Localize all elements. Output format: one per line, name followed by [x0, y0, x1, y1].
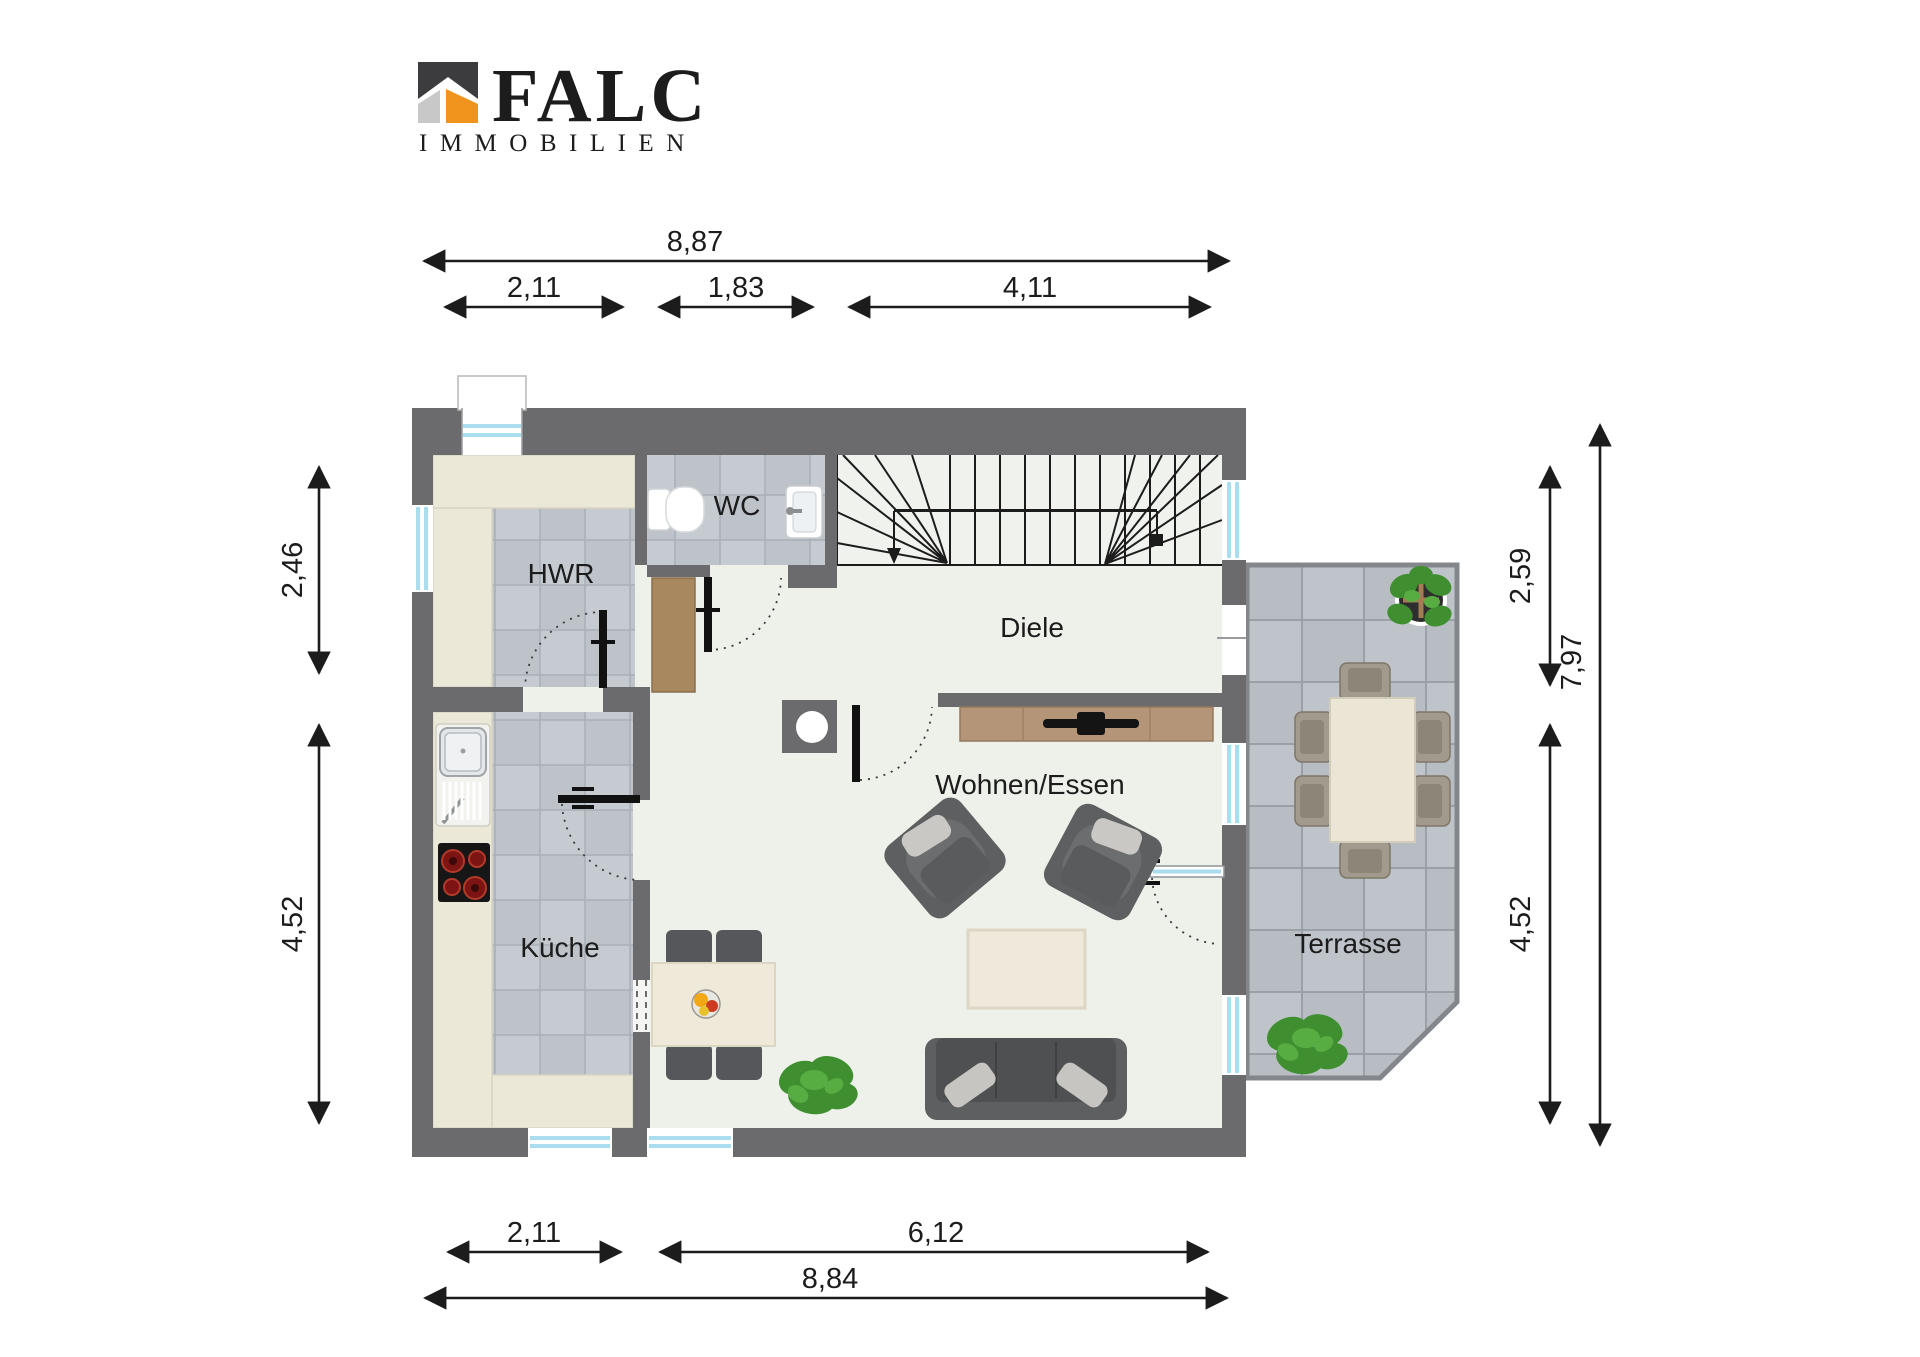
- window-right-living-upper: [1222, 743, 1246, 825]
- hwr-counter-top: [433, 455, 635, 508]
- dim-label-right-upper: 2,59: [1505, 548, 1537, 604]
- wall-top: [412, 408, 1246, 455]
- logo-wordmark: FALC: [492, 54, 709, 138]
- window-right-living-lower: [1222, 995, 1246, 1075]
- room-label-diele: Diele: [1000, 612, 1064, 643]
- dim-label-left-upper: 2,46: [277, 542, 309, 598]
- hwr-floor: [492, 508, 635, 687]
- falc-logo-icon: [418, 62, 478, 123]
- wall-kitchen-2: [633, 880, 650, 980]
- window-bottom-living: [647, 1128, 733, 1157]
- terrace-table: [1330, 698, 1415, 842]
- dim-label-top-seg1: 2,11: [507, 272, 561, 304]
- room-label-terrasse: Terrasse: [1294, 928, 1401, 959]
- sofa: [925, 1038, 1127, 1120]
- kitchen-passthrough: [633, 980, 650, 1032]
- falc-logo: FALC IMMOBILIEN: [418, 54, 709, 157]
- floorplan-page: FALC IMMOBILIEN 8,87 2,11 1,83 4,11 2,46…: [0, 0, 1920, 1357]
- floorplan-svg: FALC IMMOBILIEN 8,87 2,11 1,83 4,11 2,46…: [0, 0, 1920, 1357]
- entry-door-window: [458, 376, 526, 455]
- column-circle: [796, 711, 828, 743]
- wardrobe: [652, 578, 695, 692]
- wall-diele-living: [938, 693, 1222, 707]
- wall-hwr-bottom-right: [603, 687, 650, 712]
- dim-label-top-total: 8,87: [667, 226, 723, 258]
- kitchen-counter-bottom: [492, 1075, 633, 1128]
- room-label-wohnen-essen: Wohnen/Essen: [935, 769, 1124, 800]
- window-left-hwr: [412, 505, 433, 592]
- wall-wc-bottom: [647, 565, 710, 577]
- dim-label-top-seg3: 4,11: [1003, 272, 1057, 304]
- fruit-bowl: [692, 990, 720, 1018]
- dim-label-top-seg2: 1,83: [708, 272, 764, 304]
- kitchen-sink: [436, 724, 490, 826]
- dim-label-bottom-seg2: 6,12: [908, 1217, 964, 1249]
- window-right-diele: [1222, 480, 1246, 560]
- sideboard-tv: [960, 707, 1213, 741]
- wall-hwr-bottom-left: [433, 687, 523, 712]
- wall-hwr-wc: [635, 455, 647, 565]
- wall-kitchen-3: [633, 1032, 650, 1128]
- dim-label-bottom-total: 8,84: [802, 1263, 858, 1295]
- dim-label-right-total: 7,97: [1556, 634, 1588, 690]
- rug: [968, 930, 1085, 1008]
- logo-subtitle: IMMOBILIEN: [419, 130, 697, 157]
- stair-start-marker: [1151, 534, 1163, 546]
- wall-kitchen-1: [633, 712, 650, 800]
- room-label-wc: WC: [714, 490, 761, 521]
- kitchen-floor: [492, 712, 633, 1128]
- wall-wc-stairs: [825, 455, 837, 577]
- staircase: [837, 455, 1222, 565]
- kitchen-fixtures: [436, 724, 490, 902]
- room-label-kueche: Küche: [520, 932, 599, 963]
- wall-wc-corner: [788, 565, 837, 588]
- hwr-counter-left: [433, 508, 492, 687]
- window-bottom-kitchen: [528, 1128, 612, 1157]
- dim-label-left-lower: 4,52: [277, 896, 309, 952]
- stove: [438, 843, 490, 902]
- dim-label-right-lower: 4,52: [1505, 896, 1537, 952]
- toilet: [648, 487, 704, 532]
- wc-sink: [786, 486, 822, 538]
- dim-label-bottom-seg1: 2,11: [507, 1217, 561, 1249]
- room-label-hwr: HWR: [528, 558, 595, 589]
